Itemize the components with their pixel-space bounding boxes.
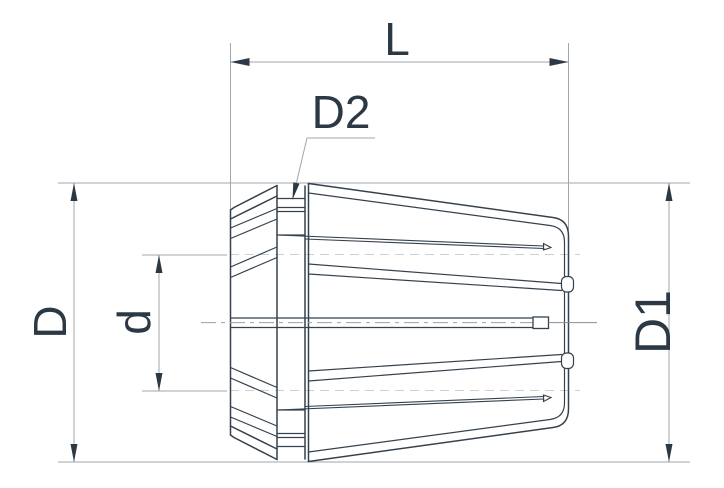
collet-dimension-drawing: L D2 D d D1 xyxy=(0,0,724,488)
label-neck-D2: D2 xyxy=(312,86,371,138)
arrow-D2-leader xyxy=(293,182,300,199)
arrow-d-down xyxy=(156,373,163,391)
drawing-svg: L D2 D d D1 xyxy=(0,0,724,488)
dimension-arrows xyxy=(71,58,673,462)
arrow-L-right xyxy=(550,58,569,66)
construction-lines xyxy=(58,43,690,462)
slot-end-cap xyxy=(533,317,549,329)
arrow-d-up xyxy=(156,255,163,273)
arrow-D-up xyxy=(71,183,78,201)
arrow-D-down xyxy=(71,444,78,462)
arrow-D1-up xyxy=(666,183,673,201)
arrow-D1-down xyxy=(666,444,673,462)
label-length-L: L xyxy=(384,13,410,65)
arrow-L-left xyxy=(231,58,250,66)
label-front-D1: D1 xyxy=(625,290,681,354)
label-back-D: D xyxy=(24,305,76,338)
label-bore-d: d xyxy=(108,309,160,335)
